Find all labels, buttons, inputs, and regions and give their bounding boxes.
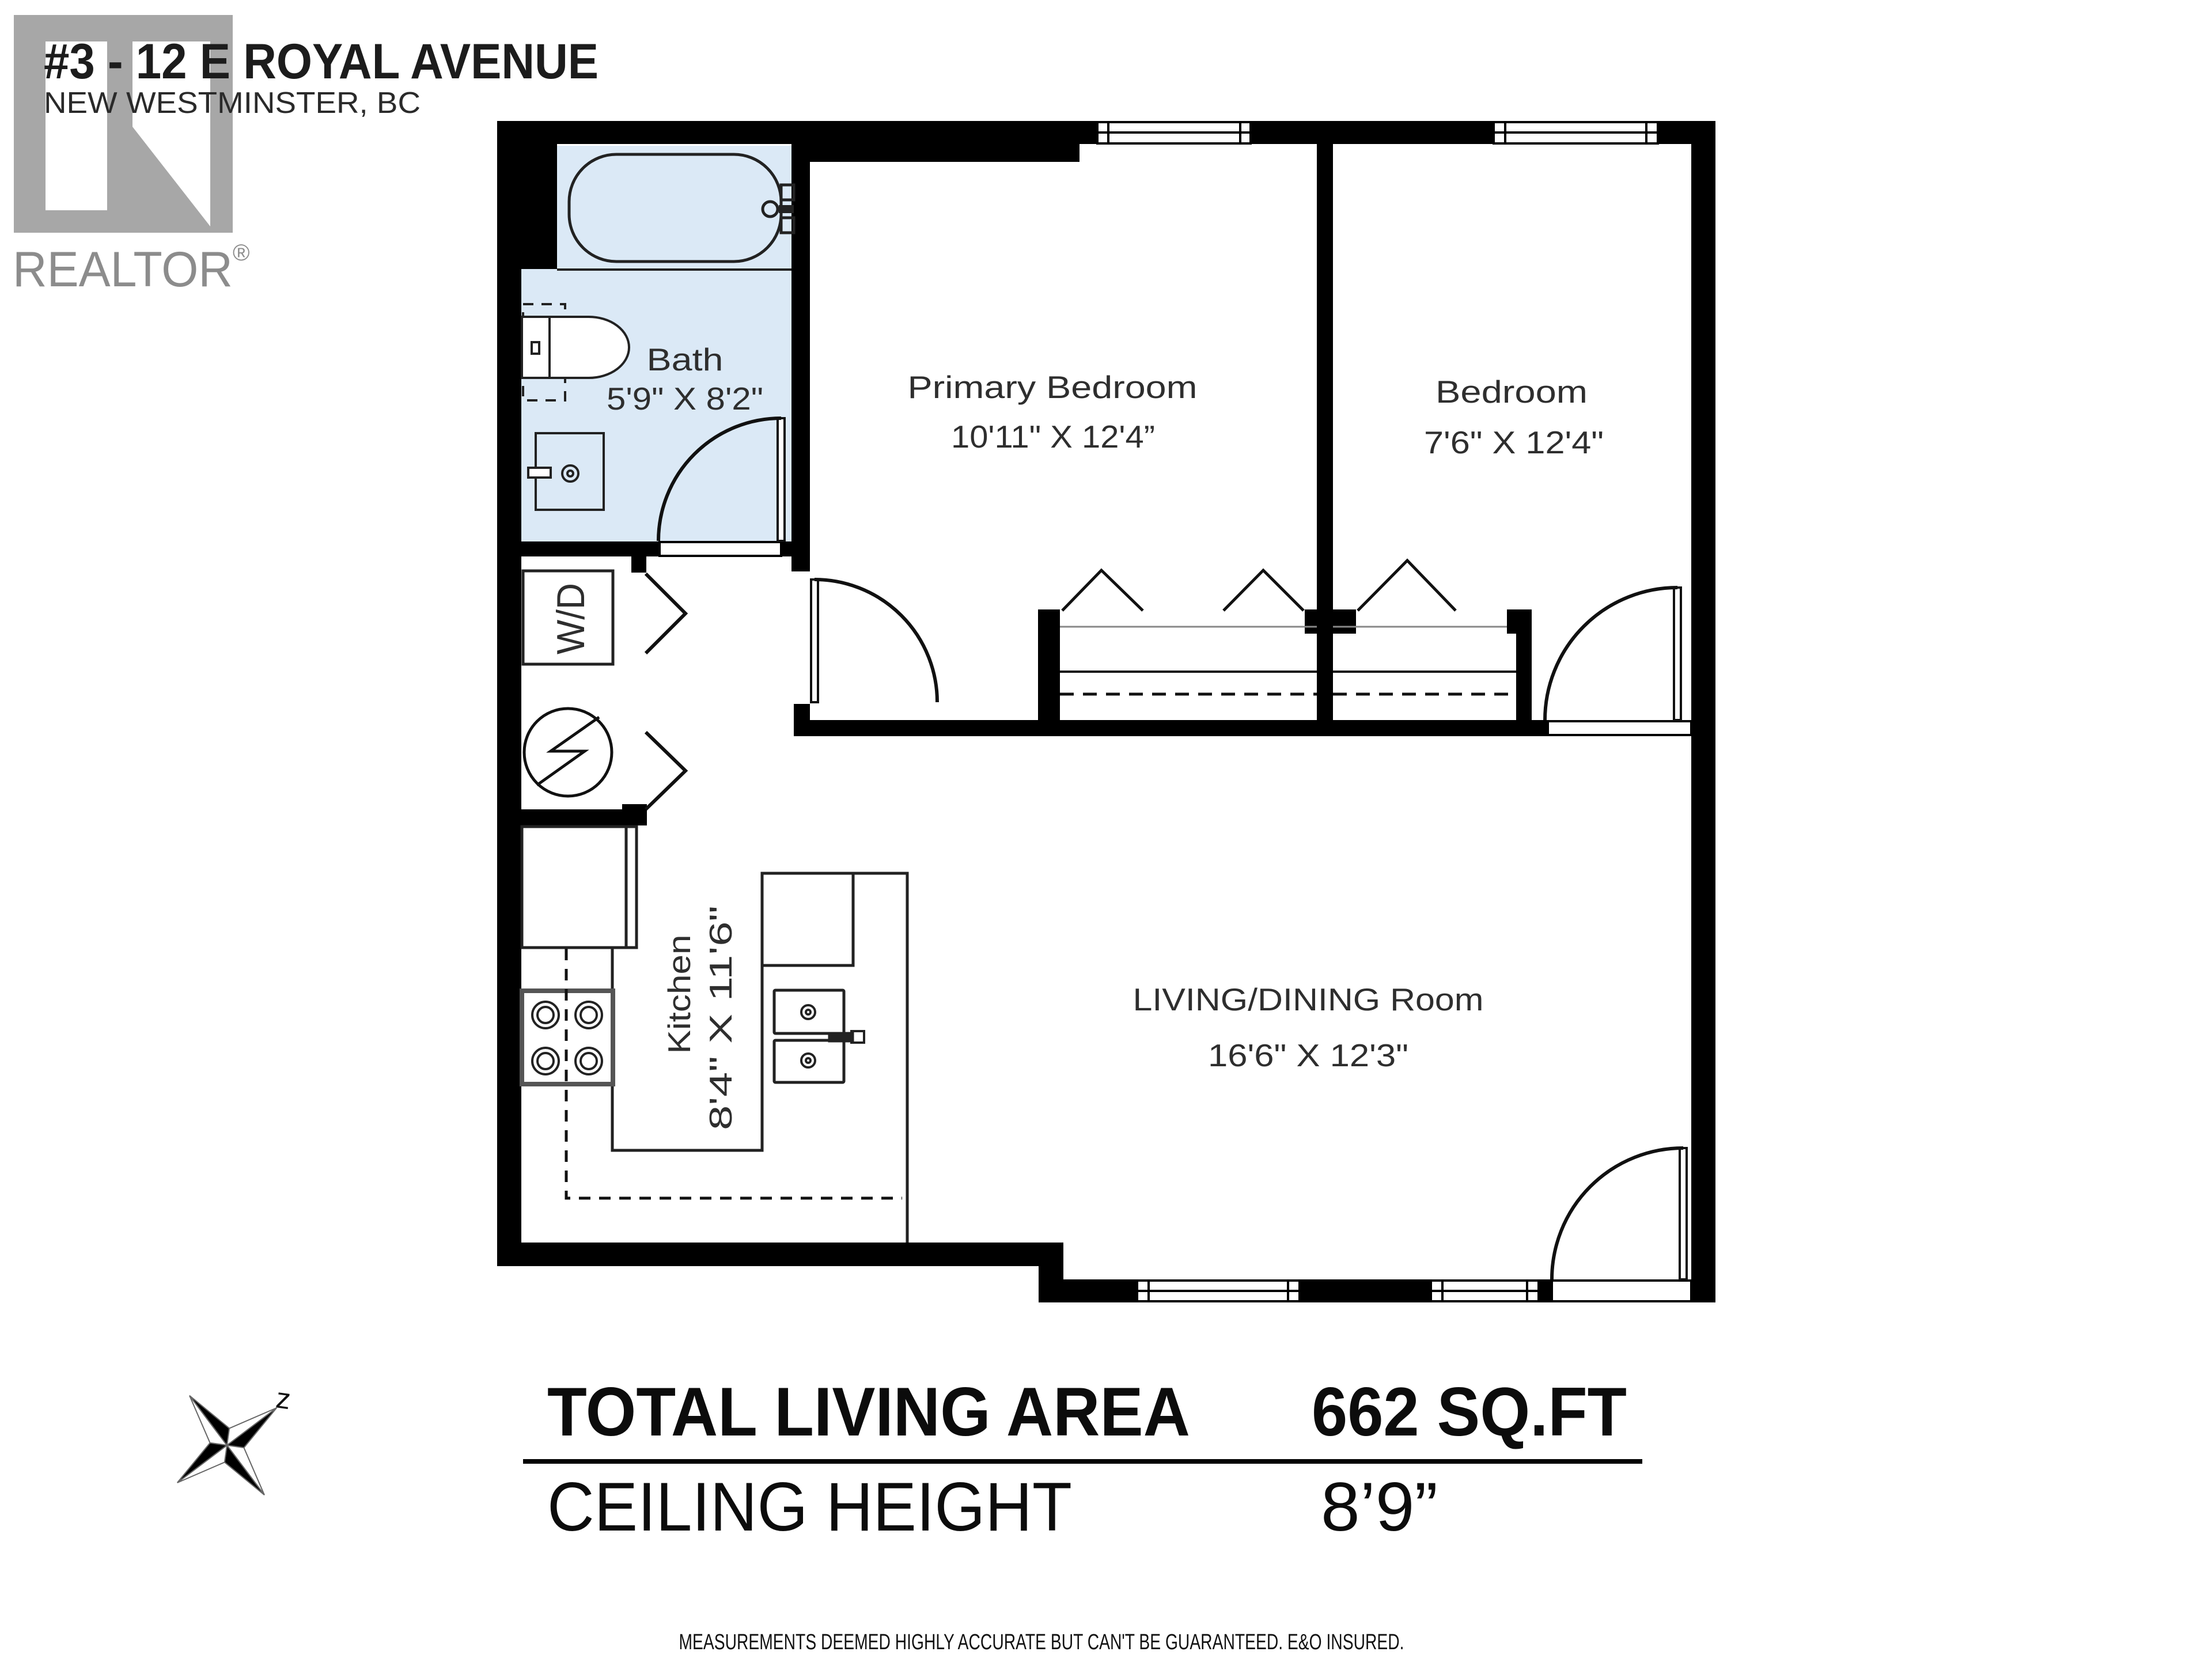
svg-text:®: ® [233,240,249,266]
svg-text:8’9”: 8’9” [1321,1468,1438,1546]
svg-text:Kitchen: Kitchen [661,935,697,1054]
svg-text:Bedroom: Bedroom [1435,374,1588,410]
svg-text:Primary Bedroom: Primary Bedroom [908,369,1198,405]
svg-text:Bath: Bath [647,342,724,377]
svg-text:10'11" X 12'4”: 10'11" X 12'4” [951,419,1155,454]
svg-text:MEASUREMENTS DEEMED HIGHLY ACC: MEASUREMENTS DEEMED HIGHLY ACCURATE BUT … [679,1630,1404,1654]
svg-text:LIVING/DINING Room: LIVING/DINING Room [1133,982,1484,1017]
svg-text:#3 - 12 E ROYAL AVENUE: #3 - 12 E ROYAL AVENUE [44,34,599,89]
svg-text:W/D: W/D [549,583,593,654]
svg-text:CEILING HEIGHT: CEILING HEIGHT [547,1468,1072,1546]
svg-text:5'9" X 8'2": 5'9" X 8'2" [607,381,763,416]
svg-text:REALTOR: REALTOR [13,242,233,297]
svg-text:662 SQ.FT: 662 SQ.FT [1312,1373,1627,1450]
svg-text:TOTAL LIVING AREA: TOTAL LIVING AREA [547,1373,1190,1450]
svg-text:8'4" X 11'6": 8'4" X 11'6" [703,906,738,1130]
svg-text:7'6" X 12'4": 7'6" X 12'4" [1424,425,1604,460]
svg-text:NEW WESTMINSTER, BC: NEW WESTMINSTER, BC [44,86,421,120]
svg-text:16'6" X 12'3": 16'6" X 12'3" [1208,1037,1408,1073]
